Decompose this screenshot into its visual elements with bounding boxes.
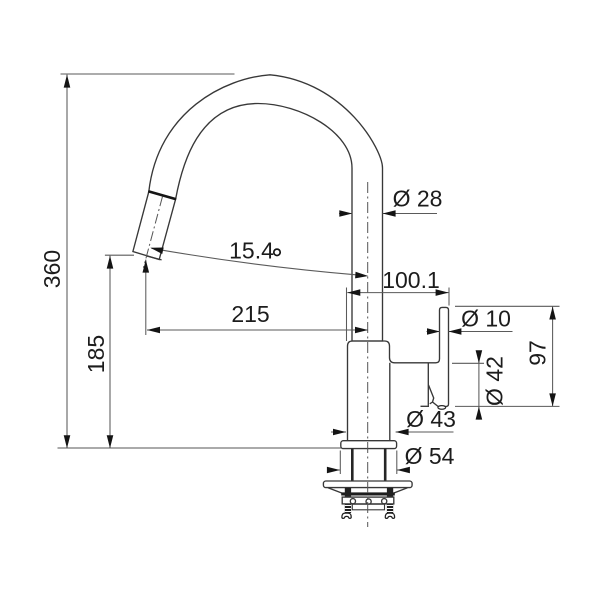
svg-text:97: 97 [525, 340, 551, 366]
svg-text:Ø 54: Ø 54 [405, 443, 455, 469]
svg-text:Ø 28: Ø 28 [393, 186, 443, 212]
svg-text:215: 215 [231, 301, 269, 327]
svg-text:Ø 43: Ø 43 [406, 406, 456, 432]
svg-text:15.4: 15.4 [229, 238, 274, 264]
svg-text:Ø 10: Ø 10 [461, 306, 511, 332]
svg-text:Ø 42: Ø 42 [482, 356, 508, 406]
svg-text:100.1: 100.1 [382, 267, 440, 293]
svg-text:360: 360 [39, 250, 65, 288]
svg-text:185: 185 [83, 335, 109, 373]
